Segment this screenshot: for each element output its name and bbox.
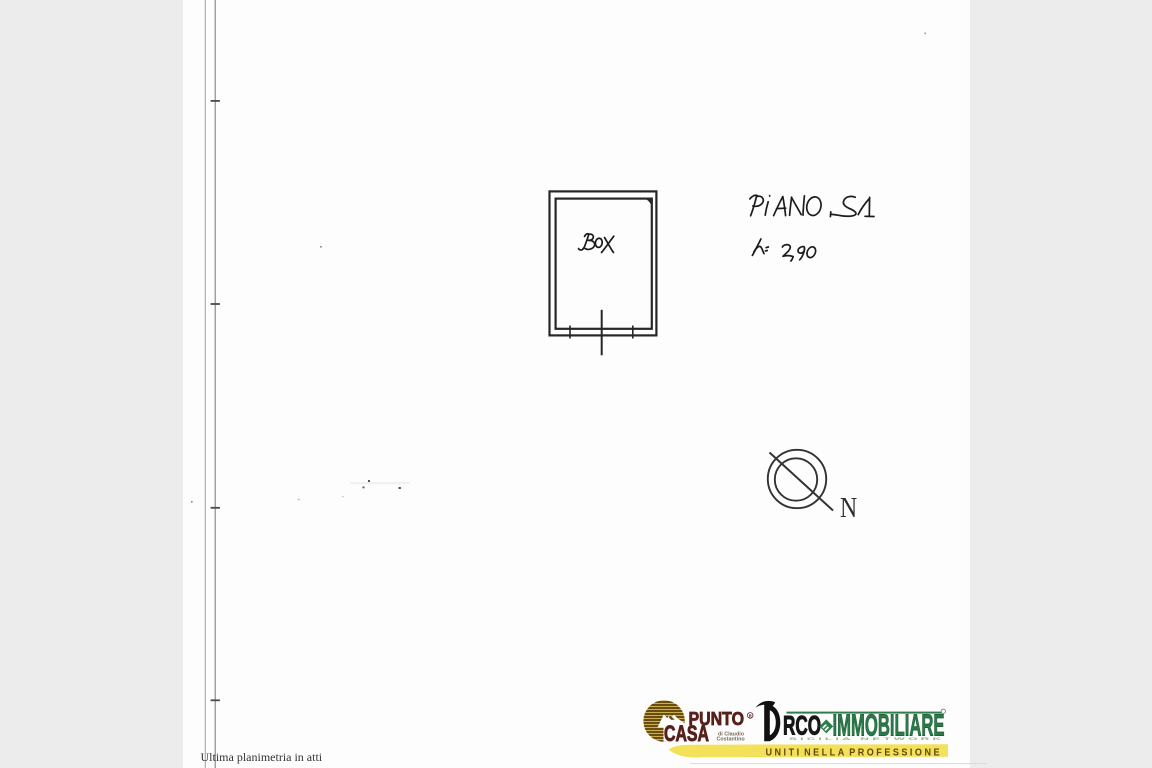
svg-text:R: R [749, 713, 752, 718]
svg-text:Costantino: Costantino [717, 737, 746, 743]
svg-text:RCO: RCO [783, 710, 821, 740]
svg-text:Ultima planimetria in atti: Ultima planimetria in atti [201, 750, 323, 764]
svg-text:CASA: CASA [664, 721, 709, 746]
svg-text:N: N [840, 493, 857, 524]
svg-text:U N I T I N E L L A P R O F: U N I T I N E L L A P R O F E S S I O N … [766, 747, 940, 758]
svg-text:S I C I L I A N E T W O R K: S I C I L I A N E T W O R K [789, 737, 942, 741]
